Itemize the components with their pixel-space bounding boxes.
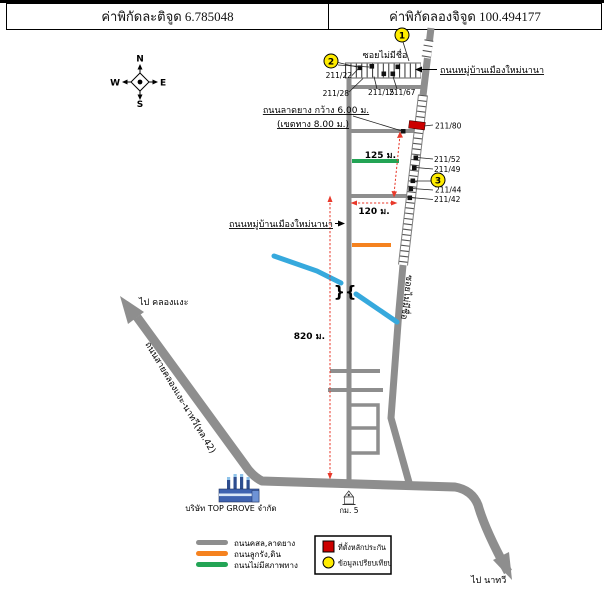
marker-number-1: 1 — [399, 32, 405, 42]
compass-rose: N S W E — [110, 55, 166, 111]
legend-collateral-square — [323, 541, 334, 552]
house-block — [370, 64, 375, 69]
leader — [424, 125, 433, 126]
village-road-right-label: ถนนหมู่บ้านเมืองใหม่นานา — [440, 65, 544, 76]
road-spec-line2: (เขตทาง 8.00 ม.) — [277, 120, 349, 130]
soi-junction-bed — [426, 40, 429, 58]
map-page: ค่าพิกัดละติจูด 6.785048 ค่าพิกัดลองจิจู… — [0, 0, 604, 594]
highway-road — [137, 317, 508, 572]
chimney-tip — [247, 477, 250, 480]
km-post-label: กม. 5 — [339, 506, 358, 515]
side-lane-loop — [351, 405, 378, 453]
stream-west — [274, 256, 341, 283]
leader — [353, 116, 402, 131]
stream-east — [356, 294, 397, 322]
direction-label-southeast: ไป นาทวี — [470, 575, 506, 586]
legend-swatch-no-condition — [196, 562, 228, 567]
compass-letter-s: S — [137, 100, 143, 110]
km-post-body — [345, 497, 354, 504]
house-label-211-67: 211/67 — [389, 88, 416, 97]
legend-comparison-label: ข้อมูลเปรียบเทียบ — [338, 559, 392, 568]
company-label: บริษัท TOP GROVE จำกัด — [185, 504, 276, 513]
compass-arrow-east — [153, 80, 159, 85]
chimney-tip — [240, 474, 243, 477]
label-arrow-head — [338, 221, 345, 227]
collateral-site-block — [409, 121, 426, 130]
compass-arrow-north — [138, 64, 143, 70]
house-label-211-80: 211/80 — [435, 122, 462, 131]
house-block — [391, 72, 396, 77]
bridge-culvert-symbol: }{ — [334, 282, 357, 301]
legend-comparison-circle — [323, 557, 334, 568]
dim-arrow — [391, 201, 398, 206]
compass-letter-e: E — [160, 79, 166, 89]
marker-number-3: 3 — [435, 177, 441, 187]
house-label-211-22: 211/22 — [326, 71, 353, 80]
km-post-dot — [348, 494, 350, 496]
compass-letter-w: W — [110, 79, 120, 89]
legend-road-types: ถนนคสล,ลาดยาง ถนนลูกรัง,ดิน ถนนไม่มีสภาพ… — [196, 539, 298, 570]
road-spec-line1: ถนนลาดยาง กว้าง 6.00 ม. — [263, 105, 369, 116]
house-label-211-28: 211/28 — [323, 89, 350, 98]
highway-name-label: ถนนสายคลองแงะ-นาทวี(ทล.42) — [142, 340, 217, 456]
compass-center-dot — [138, 80, 143, 85]
legend-collateral-label: ที่ตั้งหลักประกัน — [338, 542, 386, 552]
legend-label-paved: ถนนคสล,ลาดยาง — [234, 539, 295, 548]
house-block — [382, 72, 387, 77]
legend-swatch-gravel — [196, 551, 228, 556]
compass-letter-n: N — [136, 55, 144, 65]
km-marker: กม. 5 — [339, 491, 358, 515]
marker-number-2: 2 — [328, 58, 334, 68]
direction-label-northwest: ไป คลองแงะ — [138, 297, 189, 308]
soi-top-label: ซอยไม่มีชื่อ — [363, 48, 408, 61]
legend-label-gravel: ถนนลูกรัง,ดิน — [234, 550, 281, 560]
chimney-tip — [234, 474, 237, 477]
dim-arrow — [328, 473, 333, 480]
compass-arrow-west — [122, 80, 128, 85]
distance-label-820: 820 ม. — [294, 332, 325, 342]
house-label-211-52: 211/52 — [434, 155, 461, 164]
location-map: }{ — [0, 0, 604, 594]
legend-swatch-paved — [196, 540, 228, 545]
distance-label-120: 120 ม. — [358, 207, 389, 217]
house-label-211-42: 211/42 — [434, 195, 461, 204]
distance-label-125: 125 ม. — [365, 151, 396, 161]
factory-wing — [252, 491, 259, 503]
house-block — [396, 65, 401, 70]
stream: }{ — [274, 256, 397, 322]
chimney-tip — [227, 477, 230, 480]
legend-label-no-condition: ถนนไม่มีสภาพทาง — [234, 561, 298, 570]
village-road-left-label: ถนนหมู่บ้านเมืองใหม่นานา — [229, 219, 333, 230]
legend-symbol-box: ที่ตั้งหลักประกัน ข้อมูลเปรียบเทียบ — [315, 536, 392, 574]
dim-arrow — [328, 196, 333, 203]
dimension-line-125 — [394, 135, 400, 194]
